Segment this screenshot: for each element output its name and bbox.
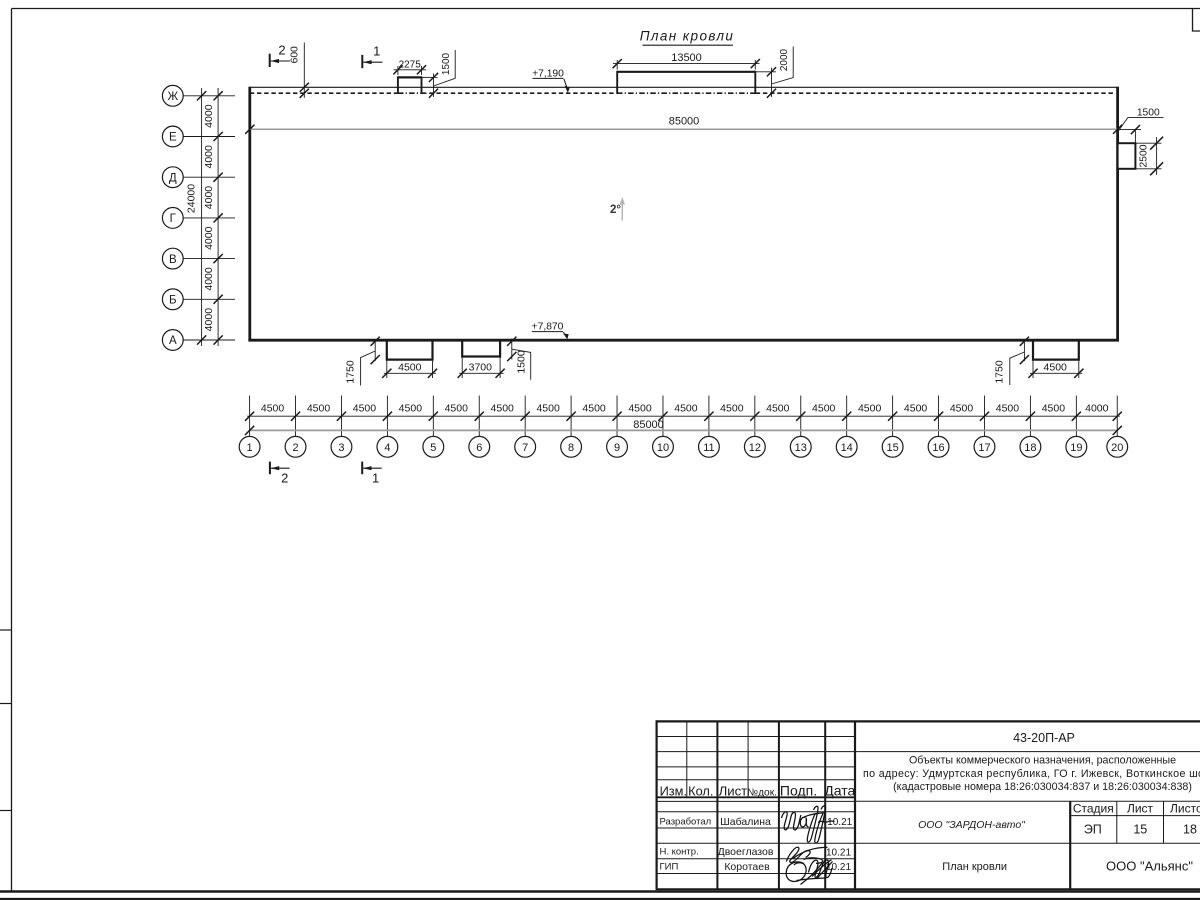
- svg-text:4500: 4500: [582, 402, 606, 414]
- svg-text:2: 2: [281, 470, 288, 485]
- svg-text:3: 3: [338, 442, 344, 454]
- svg-text:ЭП: ЭП: [1084, 823, 1102, 837]
- svg-text:4500: 4500: [307, 402, 331, 414]
- svg-text:4500: 4500: [261, 402, 285, 414]
- svg-text:4000: 4000: [203, 308, 215, 332]
- svg-text:4500: 4500: [536, 402, 560, 414]
- svg-text:8: 8: [568, 442, 574, 454]
- svg-text:1500: 1500: [516, 350, 528, 374]
- svg-text:4500: 4500: [491, 402, 515, 414]
- svg-text:Д: Д: [169, 172, 177, 184]
- svg-text:7: 7: [522, 442, 528, 454]
- svg-text:4000: 4000: [203, 267, 215, 291]
- svg-text:4500: 4500: [720, 402, 744, 414]
- svg-text:ООО "Альянс": ООО "Альянс": [1106, 859, 1193, 874]
- svg-text:2: 2: [292, 442, 298, 454]
- svg-text:4500: 4500: [674, 402, 698, 414]
- svg-text:Объекты коммерческого назначен: Объекты коммерческого назначения, распол…: [909, 755, 1176, 767]
- svg-text:18: 18: [1024, 442, 1036, 454]
- svg-text:15: 15: [886, 442, 898, 454]
- svg-text:20: 20: [1111, 442, 1123, 454]
- svg-text:600: 600: [290, 46, 301, 63]
- svg-text:Стадия: Стадия: [1073, 801, 1114, 815]
- svg-text:1750: 1750: [994, 360, 1006, 384]
- svg-text:13: 13: [795, 442, 807, 454]
- svg-text:4500: 4500: [628, 402, 652, 414]
- svg-text:85000: 85000: [633, 419, 664, 431]
- svg-text:15: 15: [1133, 823, 1147, 837]
- svg-text:Е: Е: [169, 132, 177, 144]
- svg-text:24000: 24000: [186, 184, 198, 213]
- svg-text:Б: Б: [169, 295, 177, 307]
- svg-text:4500: 4500: [950, 402, 974, 414]
- svg-text:43-20П-АР: 43-20П-АР: [1013, 731, 1075, 745]
- svg-text:4000: 4000: [203, 145, 215, 169]
- svg-text:Двоеглазов: Двоеглазов: [718, 846, 774, 858]
- svg-text:Разработал: Разработал: [660, 817, 712, 828]
- svg-text:Коротаев: Коротаев: [724, 861, 770, 873]
- svg-text:1: 1: [372, 470, 379, 485]
- svg-text:4500: 4500: [399, 402, 423, 414]
- svg-text:План кровли: План кровли: [942, 861, 1007, 873]
- svg-text:10.21: 10.21: [826, 848, 851, 859]
- svg-text:1500: 1500: [1137, 108, 1160, 119]
- svg-text:Дата: Дата: [824, 782, 855, 798]
- svg-text:4500: 4500: [812, 402, 836, 414]
- svg-text:+7,870: +7,870: [532, 322, 564, 333]
- svg-text:В: В: [169, 254, 177, 266]
- svg-text:4500: 4500: [445, 402, 469, 414]
- svg-text:18: 18: [1183, 823, 1197, 837]
- svg-text:19: 19: [1070, 442, 1082, 454]
- svg-text:Изм.: Изм.: [660, 783, 687, 798]
- svg-text:4500: 4500: [996, 402, 1020, 414]
- svg-text:1: 1: [373, 44, 380, 59]
- svg-text:4: 4: [384, 442, 390, 454]
- svg-text:4000: 4000: [203, 104, 215, 128]
- svg-text:4500: 4500: [766, 402, 790, 414]
- svg-text:5: 5: [430, 442, 436, 454]
- svg-text:Лист: Лист: [719, 783, 748, 798]
- svg-text:ГИП: ГИП: [660, 862, 679, 873]
- svg-text:4500: 4500: [398, 362, 422, 374]
- svg-text:1: 1: [247, 442, 253, 454]
- svg-text:Шабалина: Шабалина: [720, 816, 771, 828]
- svg-text:3700: 3700: [469, 362, 493, 374]
- svg-text:А: А: [169, 335, 177, 347]
- svg-text:Кол.: Кол.: [688, 783, 713, 798]
- svg-text:по адресу: Удмуртская республи: по адресу: Удмуртская республика, ГО г. …: [863, 768, 1200, 780]
- svg-text:4500: 4500: [858, 402, 882, 414]
- svg-text:4500: 4500: [904, 402, 928, 414]
- svg-text:Ж: Ж: [167, 91, 178, 103]
- svg-text:2500: 2500: [1139, 144, 1150, 167]
- svg-text:85000: 85000: [669, 116, 700, 128]
- svg-text:12: 12: [749, 442, 761, 454]
- svg-text:10: 10: [657, 442, 669, 454]
- svg-text:+7,190: +7,190: [532, 68, 564, 79]
- svg-text:4000: 4000: [203, 186, 215, 210]
- svg-text:Листов: Листов: [1170, 801, 1200, 815]
- svg-text:14: 14: [841, 442, 853, 454]
- svg-text:Лист: Лист: [1127, 801, 1154, 815]
- svg-text:4000: 4000: [1085, 402, 1109, 414]
- svg-text:(кадастровые номера 18:26:0300: (кадастровые номера 18:26:030034:837 и 1…: [893, 781, 1192, 793]
- svg-text:Н. контр.: Н. контр.: [660, 847, 699, 858]
- svg-text:17: 17: [978, 442, 990, 454]
- svg-text:2275: 2275: [399, 60, 422, 71]
- svg-text:2: 2: [278, 43, 285, 58]
- svg-text:16: 16: [932, 442, 944, 454]
- svg-text:2000: 2000: [779, 48, 790, 71]
- svg-text:4500: 4500: [353, 402, 377, 414]
- svg-text:6: 6: [476, 442, 482, 454]
- svg-text:2°: 2°: [610, 204, 621, 216]
- svg-text:4000: 4000: [203, 226, 215, 250]
- svg-text:Подп.: Подп.: [780, 782, 817, 798]
- svg-text:4500: 4500: [1042, 402, 1066, 414]
- svg-text:11: 11: [703, 442, 714, 454]
- svg-text:1500: 1500: [441, 52, 452, 75]
- svg-text:9: 9: [614, 442, 620, 454]
- svg-text:ООО "ЗАРДОН-авто": ООО "ЗАРДОН-авто": [918, 819, 1026, 831]
- svg-text:План кровли: План кровли: [640, 29, 735, 44]
- svg-text:Г: Г: [170, 213, 177, 225]
- svg-text:1750: 1750: [344, 360, 356, 384]
- svg-text:10.21: 10.21: [827, 817, 852, 828]
- svg-text:4500: 4500: [1044, 362, 1068, 374]
- svg-text:13500: 13500: [671, 52, 702, 64]
- svg-text:№док.: №док.: [747, 788, 777, 799]
